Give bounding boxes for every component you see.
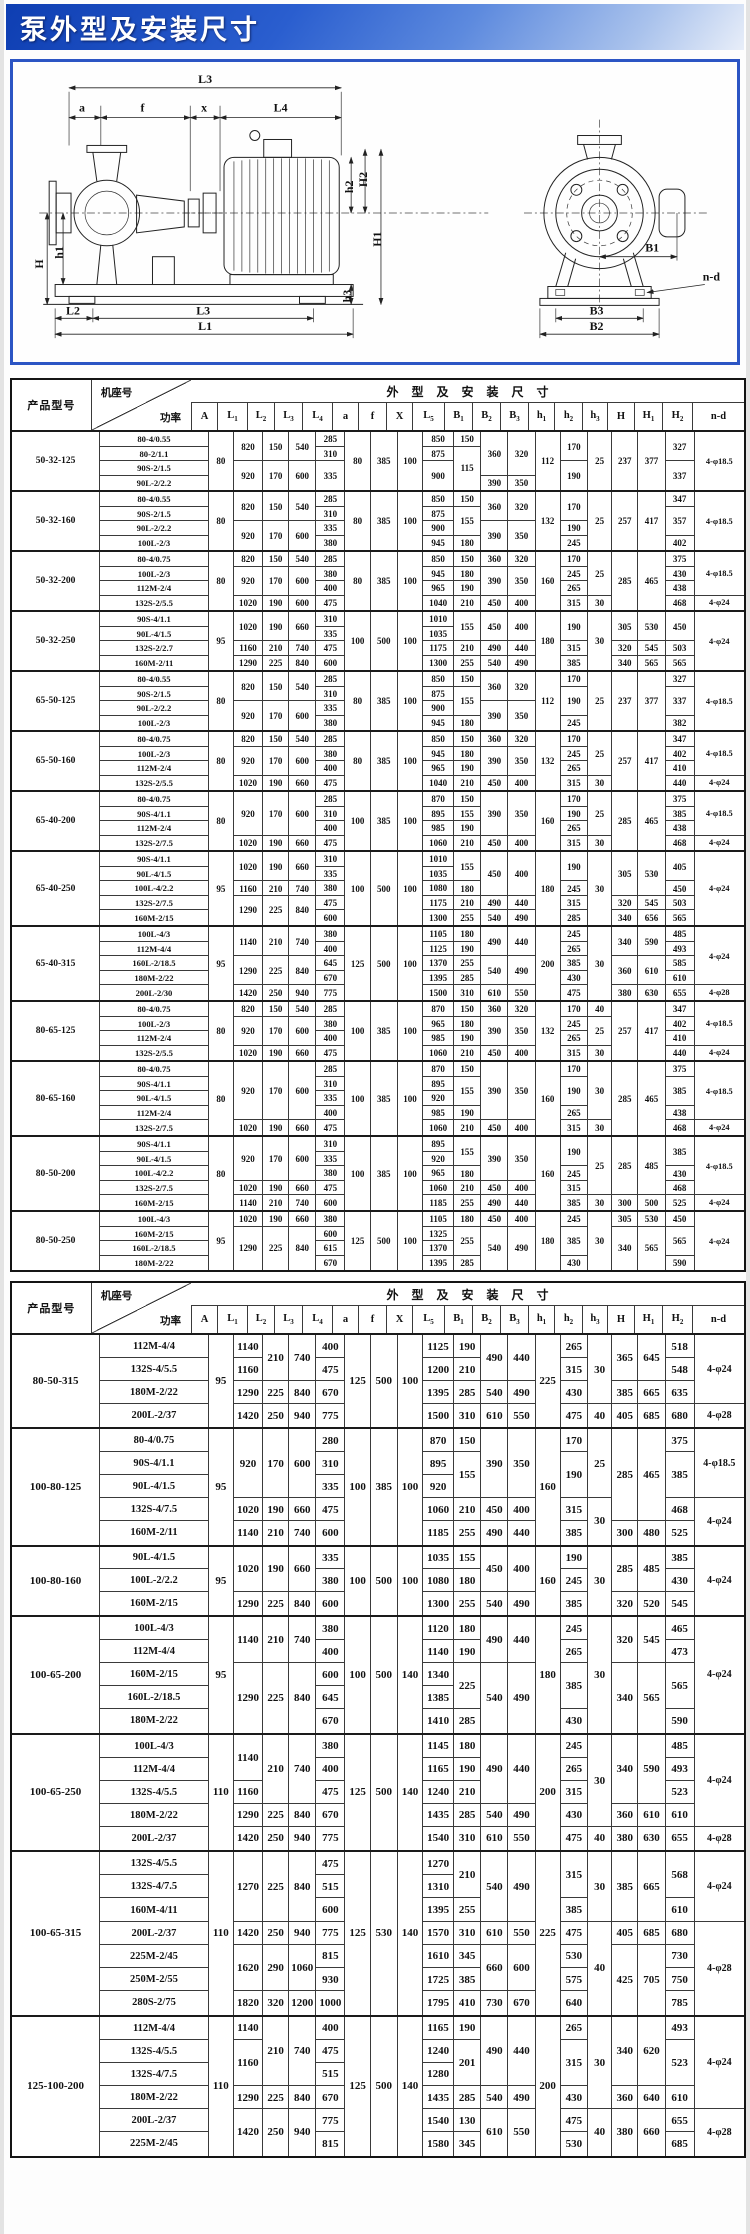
dim-cell-a: 80 xyxy=(344,732,369,790)
dim-cell-A: 95 xyxy=(208,852,233,925)
value-cell: 1060 xyxy=(423,1181,453,1196)
value-cell: 1370 xyxy=(423,1241,453,1256)
value-cell: 1000 xyxy=(316,1991,344,2014)
value-cell: 100 xyxy=(398,1429,422,1545)
value-cell: 150 xyxy=(454,492,480,507)
col-header-B2: B2 xyxy=(472,1306,500,1333)
value-cell: 80 xyxy=(209,552,233,610)
value-cell: 440 xyxy=(508,2017,534,2087)
value-cell: 190 xyxy=(561,1077,587,1106)
value-cell: 360 xyxy=(481,732,507,747)
dimensions-header: 外型及安装尺寸AL1L2L3L4afXL5B1B2B3h1h2h3HH1H2n-… xyxy=(191,380,744,430)
value-cell: 160 xyxy=(536,1137,560,1210)
dim-cell-h3: 3040 xyxy=(587,1852,611,2015)
value-cell: 100 xyxy=(345,1137,369,1210)
dim-cell-L2: 150170 xyxy=(262,672,288,730)
value-cell: 490 xyxy=(508,956,534,985)
value-cell: 840 xyxy=(289,1804,315,1827)
dim-cell-L3: 600660 xyxy=(288,792,315,850)
dim-cell-H1: 377 xyxy=(637,672,664,730)
dim-cell-h3: 3040 xyxy=(587,2017,611,2156)
dim-cell-B1: 180255285 xyxy=(453,1212,480,1270)
dim-cell-X: 100 xyxy=(397,732,422,790)
motor-list: 80-4/0.75100L-2/3112M-2/4132S-2/5.5 xyxy=(99,1002,208,1060)
dim-cell-h1: 132 xyxy=(535,492,560,550)
dim-cell-L5: 1125120013951500 xyxy=(422,1335,453,1427)
value-cell: 40 xyxy=(588,2109,611,2155)
value-cell: 190 xyxy=(561,807,587,822)
value-cell: 920 xyxy=(234,701,262,730)
dim-cell-H: 340360380 xyxy=(611,927,637,1000)
dim-cell-L1: 102011601290 xyxy=(233,852,262,925)
value-cell: 493 xyxy=(666,2017,694,2040)
value-cell: 490 xyxy=(481,1735,507,1804)
motor-item: 112M-4/4 xyxy=(100,1758,208,1781)
value-cell: 225 xyxy=(263,1381,288,1404)
value-cell: 4-φ24 xyxy=(695,1498,744,1544)
dim-cell-X: 100 xyxy=(397,852,422,925)
dim-cell-L3: 740840940 xyxy=(288,1735,315,1851)
value-cell: 490 xyxy=(508,656,534,671)
value-cell: 245 xyxy=(561,927,587,942)
value-cell: 400 xyxy=(508,776,534,791)
col-header-label-H: H xyxy=(617,411,625,422)
value-cell: 660 xyxy=(289,1547,315,1593)
dim-cell-f: 385 xyxy=(370,1429,397,1545)
value-cell: 920 xyxy=(234,792,262,836)
value-cell: 180 xyxy=(454,1569,480,1592)
value-cell: 450 xyxy=(481,1181,507,1196)
value-cell: 290 xyxy=(263,1945,288,1991)
dim-label-H2: H2 xyxy=(356,172,370,187)
value-cell: 4-φ18.5 xyxy=(695,792,744,836)
dim-cell-L3: 660740840 xyxy=(288,612,315,670)
dim-cell-L5: 8708959209851060 xyxy=(422,1062,453,1135)
value-cell: 500 xyxy=(371,1212,397,1270)
value-cell: 940 xyxy=(289,1404,315,1427)
motor-list: 80-4/0.5580-2/1.190S-2/1.590L-2/2.2 xyxy=(99,432,208,490)
value-cell: 180 xyxy=(454,747,480,762)
motor-list: 100L-4/3112M-4/4160L-2/18.5180M-2/22200L… xyxy=(99,927,208,1000)
value-cell: 210 xyxy=(454,641,480,656)
dim-cell-h2: 170190 xyxy=(560,432,587,490)
value-cell: 380 xyxy=(316,747,344,762)
value-cell: 475 xyxy=(561,1922,587,1945)
value-cell: 400 xyxy=(316,1640,344,1663)
value-cell: 170 xyxy=(263,701,288,730)
value-cell: 245 xyxy=(561,1569,587,1592)
value-cell: 550 xyxy=(508,1922,534,1945)
value-cell: 540 xyxy=(481,956,507,985)
value-cell: 870 xyxy=(423,1002,453,1017)
value-cell: 210 xyxy=(263,881,288,896)
value-cell: 660 xyxy=(289,852,315,881)
value-cell: 350 xyxy=(508,701,534,730)
value-cell: 490 xyxy=(508,1852,534,1922)
value-cell: 475 xyxy=(561,985,587,1000)
motor-item: 100L-2/3 xyxy=(100,1017,208,1032)
value-cell: 775 xyxy=(316,985,344,1000)
value-cell: 465 xyxy=(638,792,664,850)
value-cell: 180 xyxy=(454,927,480,942)
dim-cell-X: 100 xyxy=(397,1062,422,1135)
product-model: 100-80-125 xyxy=(12,1429,99,1545)
value-cell: 200 xyxy=(536,927,560,1000)
dim-cell-B2: 450490540 xyxy=(480,852,507,925)
value-cell: 660 xyxy=(289,1120,315,1135)
dim-cell-H: 257 xyxy=(611,1002,637,1060)
value-cell: 25 xyxy=(588,1137,611,1195)
dim-cell-L5: 1270131013951570161017251795 xyxy=(422,1852,453,2015)
value-cell: 170 xyxy=(263,747,288,776)
dim-cell-H1: 530565 xyxy=(637,1212,664,1270)
dim-cell-L2: 170190 xyxy=(262,792,288,850)
value-cell: 1540 xyxy=(423,2109,453,2132)
value-cell: 320 xyxy=(612,641,637,656)
value-cell: 380 xyxy=(316,1212,344,1227)
motor-item: 112M-4/4 xyxy=(100,1640,208,1663)
value-cell: 310 xyxy=(316,612,344,627)
product-model-header-label: 产品型号 xyxy=(27,1300,75,1316)
motor-item: 80-4/0.75 xyxy=(100,1002,208,1017)
value-cell: 380 xyxy=(316,1017,344,1032)
dim-cell-L4: 285310335380 xyxy=(315,672,344,730)
value-cell: 385 xyxy=(561,656,587,671)
value-cell: 310 xyxy=(454,1827,480,1850)
value-cell: 100 xyxy=(398,1137,422,1210)
value-cell: 1240 xyxy=(423,1781,453,1804)
value-cell: 515 xyxy=(316,1875,344,1898)
col-header-A: A xyxy=(191,1306,217,1333)
motor-list: 80-4/0.75100L-2/3112M-2/4132S-2/5.5 xyxy=(99,732,208,790)
dim-cell-L2: 150170 xyxy=(262,492,288,550)
dim-cell-B3: 350400440 xyxy=(507,1137,534,1210)
value-cell: 380 xyxy=(316,1735,344,1758)
value-cell: 655 xyxy=(666,985,694,1000)
dim-cell-H2: 375430438468 xyxy=(665,552,694,610)
dim-cell-L2: 210225250 xyxy=(262,2017,288,2156)
value-cell: 600 xyxy=(289,567,315,596)
value-cell: 475 xyxy=(316,596,344,611)
value-cell: 1060 xyxy=(423,1046,453,1061)
product-group-row: 125-100-200112M-4/4132S-4/5.5132S-4/7.51… xyxy=(12,2015,744,2156)
dim-cell-h1: 112 xyxy=(535,432,560,490)
value-cell: 190 xyxy=(263,852,288,881)
value-cell: 200 xyxy=(536,1735,560,1851)
value-cell: 110 xyxy=(209,1852,233,2015)
dim-cell-f: 500 xyxy=(370,1735,397,1851)
motor-list: 80-4/0.7590S-4/1.190L-4/1.5132S-4/7.5160… xyxy=(99,1429,208,1545)
value-cell: 255 xyxy=(454,956,480,971)
dim-cell-h2: 170245265315 xyxy=(560,732,587,790)
col-header-label-L5: L5 xyxy=(423,410,434,423)
product-group-row: 80-65-16080-4/0.7590S-4/1.190L-4/1.5112M… xyxy=(12,1060,744,1135)
value-cell: 385 xyxy=(371,432,397,490)
dim-cell-nd: 4-φ24 xyxy=(694,1617,744,1733)
value-cell: 540 xyxy=(481,1592,507,1615)
dim-label-h1: h1 xyxy=(52,246,66,259)
value-cell: 245 xyxy=(561,1617,587,1640)
value-cell: 200 xyxy=(536,2017,560,2156)
value-cell: 210 xyxy=(454,1358,480,1381)
dim-cell-L4: 310335475600 xyxy=(315,612,344,670)
dim-cell-H2: 493523610655685 xyxy=(665,2017,694,2156)
value-cell: 95 xyxy=(209,612,233,670)
col-header-h3: h3 xyxy=(582,403,607,430)
value-cell: 150 xyxy=(454,1002,480,1017)
dim-cell-L5: 87089592010601185 xyxy=(422,1429,453,1545)
value-cell: 4-φ24 xyxy=(695,2017,744,2110)
dim-cell-h3: 30 xyxy=(587,612,611,670)
motor-item: 225M-2/45 xyxy=(100,1945,208,1968)
value-cell: 337 xyxy=(666,461,694,490)
value-cell: 1280 xyxy=(423,2063,453,2086)
value-cell: 180 xyxy=(536,612,560,670)
value-cell: 670 xyxy=(316,1381,344,1404)
value-cell: 500 xyxy=(371,927,397,1000)
dimension-column-headers: AL1L2L3L4afXL5B1B2B3h1h2h3HH1H2n-d xyxy=(191,403,744,430)
value-cell: 112 xyxy=(536,432,560,490)
motor-item: 90L-2/2.2 xyxy=(100,521,208,536)
col-header-label-L3: L3 xyxy=(283,1313,294,1326)
dim-cell-L4: 380400475670775 xyxy=(315,1735,344,1851)
dim-cell-h1: 225 xyxy=(535,1335,560,1427)
dim-cell-L3: 540600 xyxy=(288,432,315,490)
value-cell: 523 xyxy=(666,2040,694,2086)
dim-cell-A: 80 xyxy=(208,732,233,790)
value-cell: 385 xyxy=(666,1452,694,1498)
value-cell: 1290 xyxy=(234,656,262,671)
product-group-row: 65-40-315100L-4/3112M-4/4160L-2/18.5180M… xyxy=(12,925,744,1000)
dim-cell-L1: 820920 xyxy=(233,432,262,490)
value-cell: 630 xyxy=(638,1827,664,1850)
motor-item: 80-2/1.1 xyxy=(100,447,208,462)
value-cell: 503 xyxy=(666,641,694,656)
value-cell: 530 xyxy=(638,1212,664,1227)
value-cell: 30 xyxy=(588,1547,611,1616)
product-group-row: 50-32-12580-4/0.5580-2/1.190S-2/1.590L-2… xyxy=(12,430,744,490)
product-model-header: 产品型号 xyxy=(12,380,92,430)
page-title: 泵外型及安装尺寸 xyxy=(6,8,260,47)
value-cell: 1020 xyxy=(234,1547,262,1593)
motor-item: 90S-4/1.1 xyxy=(100,1077,208,1092)
value-cell: 875 xyxy=(423,507,453,522)
value-cell: 390 xyxy=(481,1429,507,1498)
value-cell: 940 xyxy=(289,1827,315,1850)
dim-cell-L1: 9201020 xyxy=(233,1062,262,1135)
value-cell: 155 xyxy=(454,1137,480,1166)
value-cell: 610 xyxy=(638,1804,664,1827)
value-cell: 945 xyxy=(423,716,453,731)
dim-cell-B1: 150180190210 xyxy=(453,732,480,790)
value-cell: 590 xyxy=(666,1256,694,1271)
motor-item: 90S-2/1.5 xyxy=(100,507,208,522)
value-cell: 80 xyxy=(345,672,369,730)
value-cell: 210 xyxy=(454,896,480,911)
dim-cell-H1: 417 xyxy=(637,492,664,550)
value-cell: 380 xyxy=(316,1617,344,1640)
col-header-h1: h1 xyxy=(528,1306,554,1333)
col-header-label-f: f xyxy=(371,1314,375,1325)
dim-cell-h3: 30 xyxy=(587,1617,611,1733)
product-model: 125-100-200 xyxy=(12,2017,99,2156)
motor-item: 90L-4/1.5 xyxy=(100,1152,208,1167)
dim-cell-L4: 285310400475 xyxy=(315,792,344,850)
dim-cell-L5: 89592096510601185 xyxy=(422,1137,453,1210)
value-cell: 380 xyxy=(316,927,344,942)
dim-cell-a: 80 xyxy=(344,552,369,610)
dim-cell-A: 110 xyxy=(208,2017,233,2156)
product-group-row: 50-32-16080-4/0.5590S-2/1.590L-2/2.2100L… xyxy=(12,490,744,550)
value-cell: 895 xyxy=(423,1077,453,1092)
dim-cell-a: 100 xyxy=(344,1429,369,1545)
dim-cell-L3: 740840940 xyxy=(288,2017,315,2156)
value-cell: 920 xyxy=(423,1475,453,1498)
value-cell: 4-φ24 xyxy=(695,852,744,925)
dim-cell-H1: 417 xyxy=(637,1002,664,1060)
dim-cell-H: 365385405 xyxy=(611,1335,637,1427)
value-cell: 540 xyxy=(481,1381,507,1404)
value-cell: 1420 xyxy=(234,985,262,1000)
dim-cell-L5: 116512401280143515401580 xyxy=(422,2017,453,2156)
value-cell: 385 xyxy=(371,732,397,790)
value-cell: 1140 xyxy=(234,2017,262,2040)
value-cell: 485 xyxy=(666,927,694,942)
value-cell: 30 xyxy=(588,1335,611,1404)
value-cell: 1300 xyxy=(423,656,453,671)
value-cell: 500 xyxy=(371,852,397,925)
dim-cell-h2: 170245265315 xyxy=(560,552,587,610)
value-cell: 775 xyxy=(316,1827,344,1850)
dim-cell-L1: 10201290 xyxy=(233,1547,262,1616)
motor-list: 100L-4/3112M-4/4160M-2/15160L-2/18.5180M… xyxy=(99,1617,208,1733)
value-cell: 400 xyxy=(316,2017,344,2040)
value-cell: 380 xyxy=(316,567,344,582)
motor-list: 100L-4/3160M-2/15160L-2/18.5180M-2/22 xyxy=(99,1212,208,1270)
value-cell: 80 xyxy=(209,1137,233,1210)
value-cell: 40 xyxy=(588,1922,611,2015)
col-header-B1: B1 xyxy=(444,1306,472,1333)
value-cell: 400 xyxy=(316,1106,344,1121)
product-model: 100-65-315 xyxy=(12,1852,99,2015)
col-header-label-H2: H2 xyxy=(672,1313,684,1326)
value-cell: 1140 xyxy=(234,927,262,956)
value-cell: 438 xyxy=(666,581,694,596)
value-cell: 785 xyxy=(666,1991,694,2014)
dim-cell-B1: 190210285310 xyxy=(453,1335,480,1427)
dim-cell-B2: 360390 xyxy=(480,432,507,490)
col-header-label-nd: n-d xyxy=(711,1314,726,1325)
value-cell: 285 xyxy=(316,732,344,747)
value-cell: 900 xyxy=(423,461,453,490)
value-cell: 335 xyxy=(316,1152,344,1167)
page-title-banner: 泵外型及安装尺寸 xyxy=(6,4,744,50)
dim-cell-X: 100 xyxy=(397,1137,422,1210)
value-cell: 340 xyxy=(612,910,637,925)
dim-cell-X: 100 xyxy=(397,1429,422,1545)
value-cell: 380 xyxy=(612,1827,637,1850)
value-cell: 390 xyxy=(481,567,507,596)
dim-cell-L1: 1140116012901420 xyxy=(233,1335,262,1427)
value-cell: 550 xyxy=(508,1404,534,1427)
value-cell: 4-φ28 xyxy=(695,1922,744,2015)
dim-cell-a: 125 xyxy=(344,1852,369,2015)
value-cell: 465 xyxy=(638,1429,664,1521)
value-cell: 250 xyxy=(263,1404,288,1427)
value-cell: 80 xyxy=(209,672,233,730)
value-cell: 390 xyxy=(481,701,507,730)
col-header-label-nd: n-d xyxy=(711,411,726,422)
product-group-row: 80-50-250100L-4/3160M-2/15160L-2/18.5180… xyxy=(12,1210,744,1270)
value-cell: 870 xyxy=(423,1429,453,1452)
value-cell: 125 xyxy=(345,1735,369,1851)
value-cell: 850 xyxy=(423,432,453,447)
value-cell: 1270 xyxy=(423,1852,453,1875)
value-cell: 4-φ18.5 xyxy=(695,432,744,490)
value-cell: 190 xyxy=(561,461,587,490)
value-cell: 1160 xyxy=(234,881,262,896)
value-cell: 180 xyxy=(454,536,480,551)
dim-cell-L1: 92010201140 xyxy=(233,1429,262,1545)
value-cell: 150 xyxy=(454,552,480,567)
value-cell: 285 xyxy=(316,1062,344,1077)
value-cell: 150 xyxy=(263,432,288,461)
value-cell: 170 xyxy=(561,1429,587,1452)
value-cell: 377 xyxy=(638,432,664,490)
value-cell: 170 xyxy=(263,792,288,836)
value-cell: 490 xyxy=(508,1804,534,1827)
value-cell: 1145 xyxy=(423,1735,453,1758)
value-cell: 225 xyxy=(263,1852,288,1922)
value-cell: 1290 xyxy=(234,896,262,925)
value-cell: 210 xyxy=(263,2017,288,2087)
value-cell: 190 xyxy=(263,1120,288,1135)
dim-cell-B3: 400440490 xyxy=(507,612,534,670)
value-cell: 965 xyxy=(423,761,453,776)
col-header-L4: L4 xyxy=(302,403,332,430)
dim-cell-L4: 285310335380 xyxy=(315,492,344,550)
value-cell: 320 xyxy=(508,432,534,476)
value-cell: 490 xyxy=(508,1381,534,1404)
motor-item: 100L-2/3 xyxy=(100,716,208,731)
value-cell: 340 xyxy=(612,656,637,671)
value-cell: 815 xyxy=(316,1945,344,1968)
value-cell: 132 xyxy=(536,1002,560,1060)
spec-table-section-1: 产品型号机座号功率外型及安装尺寸AL1L2L3L4afXL5B1B2B3h1h2… xyxy=(10,378,746,1272)
value-cell: 340 xyxy=(612,1227,637,1271)
dim-cell-nd: 4-φ24 xyxy=(694,852,744,925)
dim-cell-h3: 30 xyxy=(587,1212,611,1270)
value-cell: 335 xyxy=(316,1547,344,1570)
value-cell: 1395 xyxy=(423,1256,453,1271)
dim-cell-L5: 11051125137013951500 xyxy=(422,927,453,1000)
value-cell: 590 xyxy=(638,927,664,956)
dim-cell-f: 500 xyxy=(370,612,397,670)
value-cell: 320 xyxy=(263,1991,288,2014)
value-cell: 450 xyxy=(481,836,507,851)
value-cell: 255 xyxy=(454,1521,480,1544)
value-cell: 285 xyxy=(612,1429,637,1521)
dim-cell-X: 140 xyxy=(397,1735,422,1851)
value-cell: 285 xyxy=(316,1002,344,1017)
col-header-H1: H1 xyxy=(634,1306,662,1333)
value-cell: 315 xyxy=(561,641,587,656)
value-cell: 450 xyxy=(666,881,694,896)
value-cell: 1420 xyxy=(234,2109,262,2155)
product-model: 80-50-315 xyxy=(12,1335,99,1427)
value-cell: 440 xyxy=(508,641,534,656)
col-header-nd: n-d xyxy=(692,1306,744,1333)
